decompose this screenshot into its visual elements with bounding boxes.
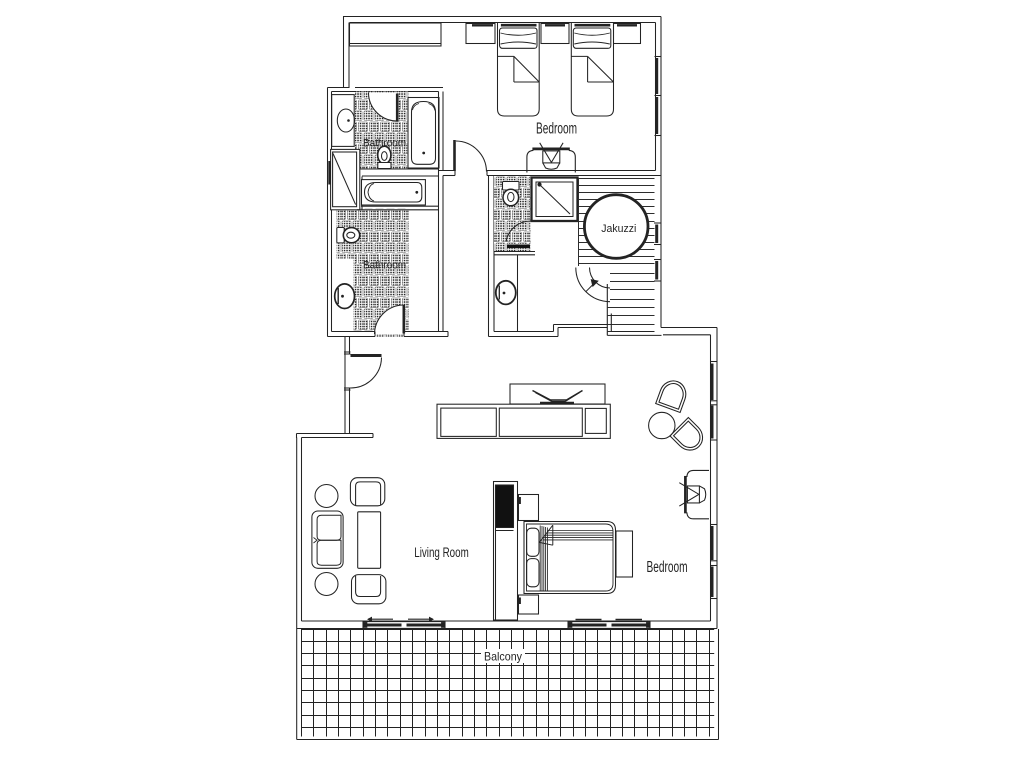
svg-text:Living Room: Living Room [414, 544, 469, 560]
svg-text:Bathroom: Bathroom [363, 260, 406, 272]
svg-text:Bedroom: Bedroom [647, 559, 688, 576]
svg-text:Jakuzzi: Jakuzzi [601, 223, 636, 235]
svg-text:Bedroom: Bedroom [536, 121, 577, 138]
svg-text:Bathroom: Bathroom [363, 138, 406, 150]
svg-text:Balcony: Balcony [484, 650, 522, 664]
